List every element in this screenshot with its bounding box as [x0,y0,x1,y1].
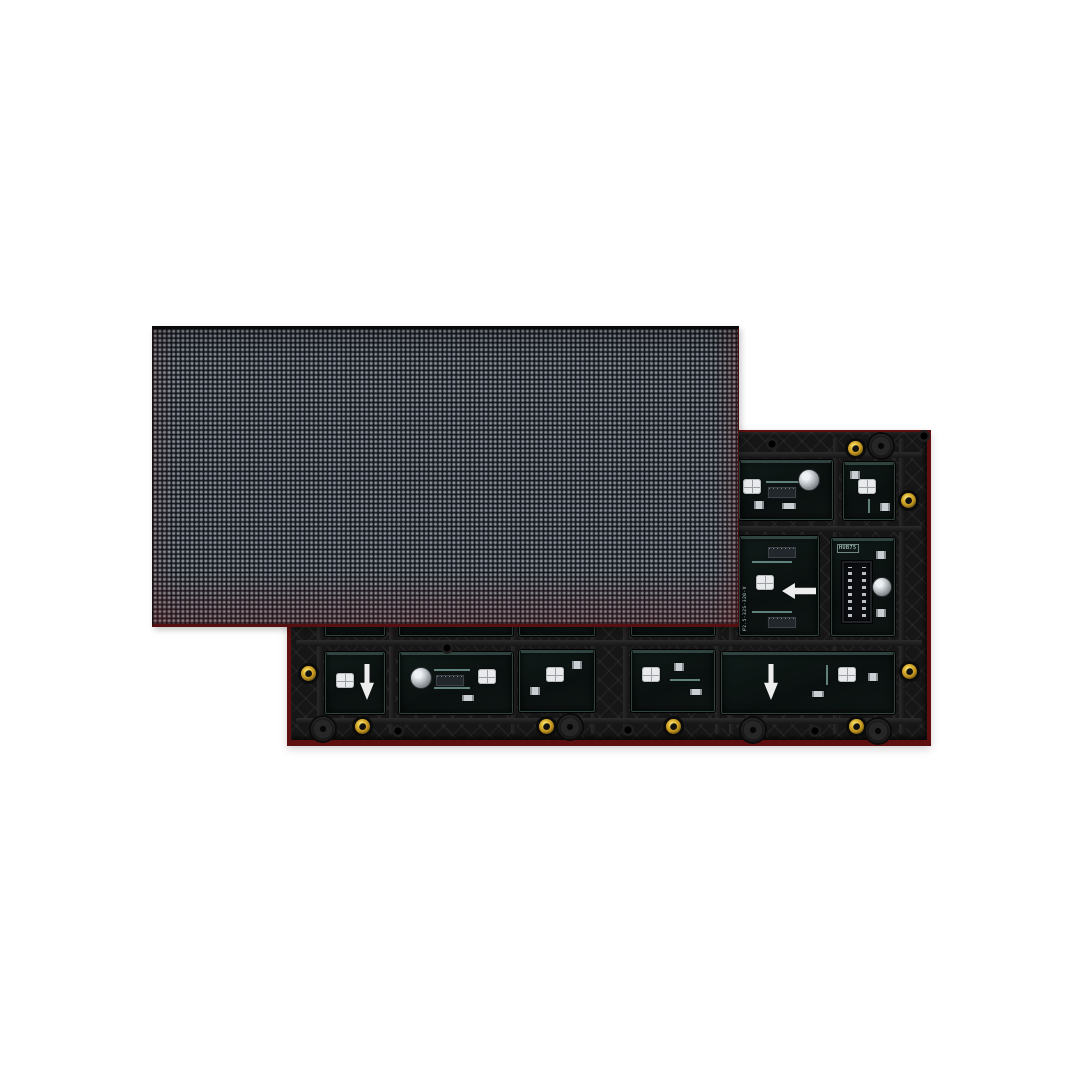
frame-hole [392,725,404,737]
smd-component [876,551,886,559]
standoff-disc [869,434,893,458]
capacitor [410,667,432,689]
smd-component [690,689,702,695]
standoff-disc [311,717,335,741]
white-component [478,669,496,684]
brass-screw [666,719,681,734]
brass-screw [849,719,864,734]
frame-rail [296,718,922,724]
standoff-disc [558,715,582,739]
smd-component [876,609,886,617]
arrow-down-icon [764,664,778,700]
pcb-window [631,650,715,712]
smd-component [812,691,824,697]
ic-chip [768,487,796,498]
led-pixel-matrix [153,329,738,624]
frame-hole [441,642,453,654]
standoff-disc [741,718,765,742]
pcb-window [325,652,385,714]
capacitor [798,469,820,491]
pcb-window [721,652,895,714]
brass-screw [301,666,316,681]
brass-screw [539,719,554,734]
pcb-window [843,462,895,520]
smd-component [530,687,540,695]
pcb-window [519,650,595,712]
frame-hole [766,438,778,450]
standoff-disc [866,719,890,743]
ic-chip [768,547,796,558]
capacitor [872,577,892,597]
white-component [336,673,354,688]
ic-chip [436,675,464,686]
smd-component [868,673,878,681]
white-component [858,479,876,494]
product-photo-canvas: P2.5-32S-320-VHUB75 [0,0,1080,1080]
pcb-trace [752,561,792,563]
frame-hole [918,430,930,442]
pcb-trace [868,499,870,513]
white-component [642,667,660,682]
frame-rib [899,438,905,734]
pcb-trace [766,481,800,483]
brass-screw [355,719,370,734]
idc-connector [842,561,872,623]
white-component [756,575,774,590]
pcb-trace [434,687,470,689]
pcb-trace [434,669,470,671]
smd-component [674,663,684,671]
connector-label: HUB75 [837,544,859,553]
smd-component [754,501,764,509]
arrow-down-icon [360,664,374,700]
brass-screw [848,441,863,456]
smd-component [850,471,860,479]
pcb-window: P2.5-32S-320-V [739,536,819,636]
smd-component [782,503,796,509]
white-component [743,479,761,494]
pcb-trace [752,611,792,613]
white-component [546,667,564,682]
pcb-window [739,460,833,520]
frame-hole [809,725,821,737]
arrow-left-icon [782,583,816,599]
brass-screw [902,664,917,679]
smd-component [572,661,582,669]
pcb-window: HUB75 [831,538,895,636]
pcb-trace [826,665,828,685]
model-silkscreen: P2.5-32S-320-V [743,569,752,631]
frame-rail [296,640,922,646]
white-component [838,667,856,682]
ic-chip [768,617,796,628]
pcb-window [399,652,513,714]
led-module-front-panel [152,326,739,627]
frame-hole [622,724,634,736]
smd-component [880,503,890,511]
brass-screw [901,493,916,508]
pcb-trace [670,679,700,681]
smd-component [462,695,474,701]
